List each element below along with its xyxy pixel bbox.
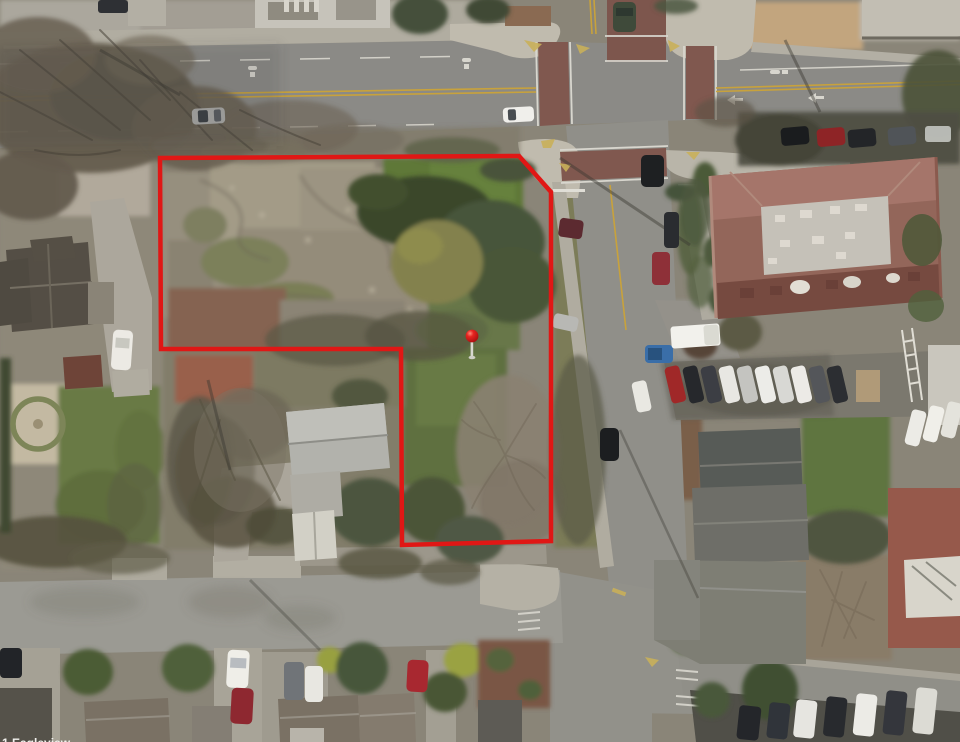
svg-text:1 Eagleview: 1 Eagleview xyxy=(2,736,71,742)
